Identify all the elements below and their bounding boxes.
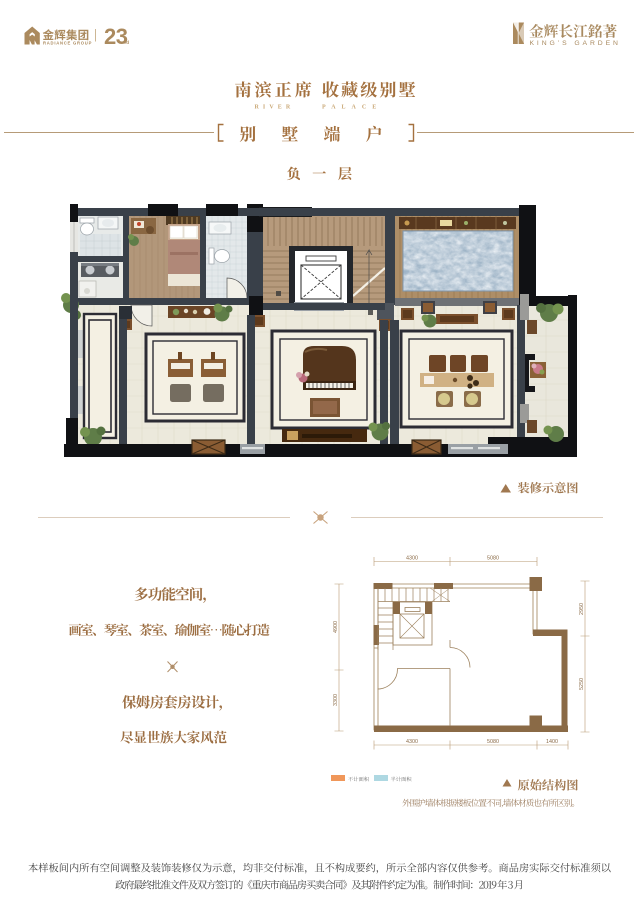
svg-text:5080: 5080 xyxy=(487,556,499,562)
svg-text:4900: 4900 xyxy=(333,621,339,633)
svg-text:rd: rd xyxy=(125,40,130,45)
svg-text:4300: 4300 xyxy=(406,556,418,562)
svg-text:4300: 4300 xyxy=(406,739,418,745)
svg-text:5250: 5250 xyxy=(579,678,585,690)
svg-text:RADIANCE GROUP: RADIANCE GROUP xyxy=(43,40,92,45)
svg-text:23: 23 xyxy=(104,24,128,49)
svg-text:2950: 2950 xyxy=(579,603,585,615)
svg-text:5080: 5080 xyxy=(487,739,499,745)
svg-text:3300: 3300 xyxy=(333,694,339,706)
svg-text:KING’S GARDEN: KING’S GARDEN xyxy=(530,40,621,47)
svg-text:1400: 1400 xyxy=(546,739,558,745)
svg-text:RIVER: RIVER xyxy=(255,105,295,111)
svg-text:PALACE: PALACE xyxy=(322,105,382,111)
